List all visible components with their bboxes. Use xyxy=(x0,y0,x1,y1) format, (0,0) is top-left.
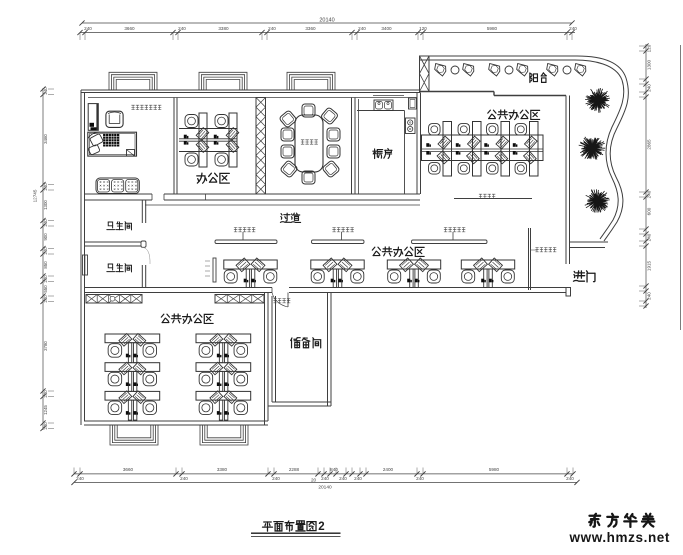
svg-text:240: 240 xyxy=(647,190,652,198)
svg-text:240: 240 xyxy=(358,26,366,31)
svg-text:240: 240 xyxy=(43,275,48,283)
svg-text:3380: 3380 xyxy=(217,467,228,472)
svg-text:3660: 3660 xyxy=(124,26,135,31)
svg-text:20140: 20140 xyxy=(318,485,332,491)
svg-text:240: 240 xyxy=(43,247,48,255)
svg-text:1300: 1300 xyxy=(647,59,652,70)
svg-text:240: 240 xyxy=(43,87,48,95)
svg-text:2400: 2400 xyxy=(383,467,394,472)
svg-text:850: 850 xyxy=(43,261,48,269)
svg-text:240: 240 xyxy=(43,422,48,430)
svg-text:240: 240 xyxy=(43,219,48,227)
svg-text:240: 240 xyxy=(566,476,574,481)
svg-text:240: 240 xyxy=(647,84,652,92)
svg-text:120: 120 xyxy=(647,44,652,52)
svg-text:1245: 1245 xyxy=(43,405,48,415)
svg-text:2865: 2865 xyxy=(647,139,652,150)
svg-text:600: 600 xyxy=(647,207,652,215)
svg-text:5980: 5980 xyxy=(489,467,500,472)
svg-text:240: 240 xyxy=(321,476,329,481)
svg-text:240: 240 xyxy=(354,476,362,481)
svg-text:20140: 20140 xyxy=(319,18,334,24)
svg-text:12745: 12745 xyxy=(33,189,38,202)
svg-text:840: 840 xyxy=(330,467,338,472)
svg-text:240: 240 xyxy=(569,26,577,31)
svg-text:240: 240 xyxy=(178,26,186,31)
svg-text:3460: 3460 xyxy=(43,134,48,144)
svg-text:2: 2 xyxy=(318,521,324,533)
svg-text:1915: 1915 xyxy=(647,260,652,271)
svg-text:240: 240 xyxy=(43,183,48,191)
svg-text:3400: 3400 xyxy=(381,26,392,31)
svg-text:1300: 1300 xyxy=(43,200,48,210)
svg-text:20: 20 xyxy=(311,478,317,483)
svg-text:240: 240 xyxy=(416,476,424,481)
svg-text:5980: 5980 xyxy=(487,26,498,31)
svg-text:3360: 3360 xyxy=(305,26,316,31)
svg-text:240: 240 xyxy=(43,295,48,303)
svg-text:900: 900 xyxy=(43,233,48,241)
svg-text:3660: 3660 xyxy=(123,467,134,472)
svg-text:550: 550 xyxy=(43,285,48,293)
svg-text:www.hmzs.net: www.hmzs.net xyxy=(569,530,670,545)
svg-text:240: 240 xyxy=(272,476,280,481)
svg-text:240: 240 xyxy=(268,26,276,31)
svg-text:2288: 2288 xyxy=(289,467,300,472)
svg-text:3780: 3780 xyxy=(43,341,48,351)
svg-text:240: 240 xyxy=(339,476,347,481)
svg-text:240: 240 xyxy=(180,476,188,481)
svg-text:240: 240 xyxy=(647,233,652,241)
svg-text:240: 240 xyxy=(76,476,84,481)
svg-text:240: 240 xyxy=(43,390,48,398)
svg-text:3380: 3380 xyxy=(218,26,229,31)
svg-text:240: 240 xyxy=(647,292,652,300)
svg-text:120: 120 xyxy=(419,26,427,31)
svg-text:240: 240 xyxy=(84,26,92,31)
